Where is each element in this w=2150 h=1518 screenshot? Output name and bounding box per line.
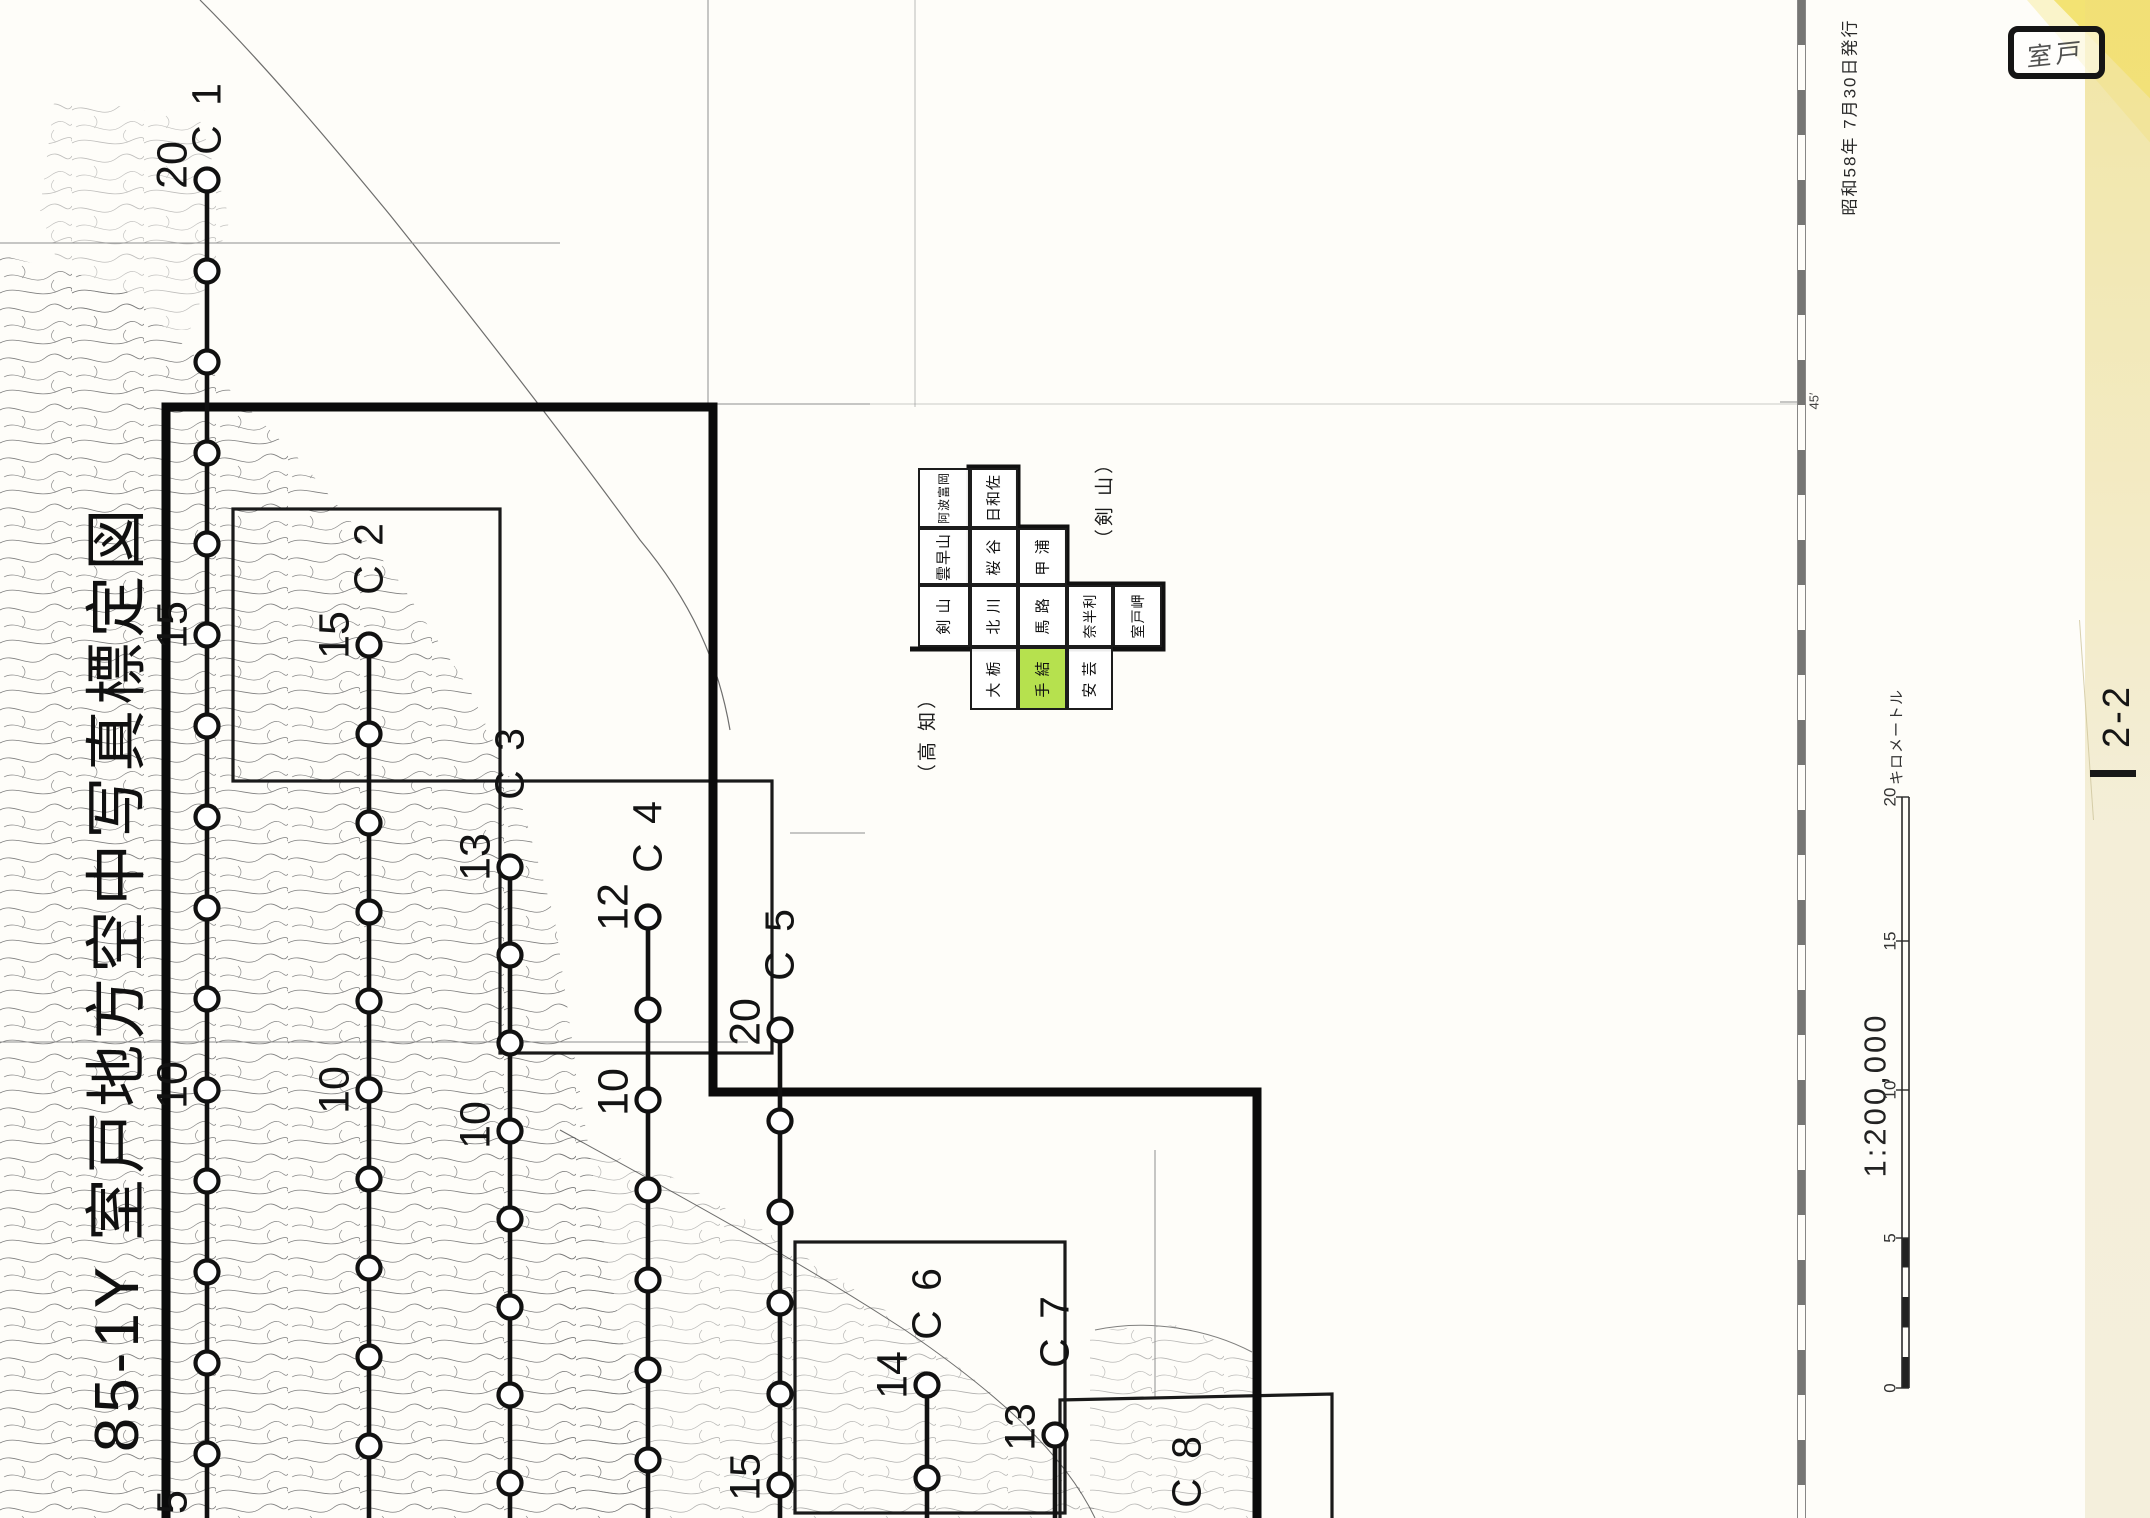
photo-number-c4-10: 10 (593, 1068, 636, 1116)
photo-center-c3 (499, 944, 522, 967)
sheet-number: 2-2 (2098, 684, 2136, 748)
flight-line-label-c5: C 5 (760, 905, 801, 981)
index-cell-label-甲浦: 甲 浦 (1035, 538, 1050, 575)
photo-center-c2 (358, 990, 381, 1013)
flight-line-label-c8: C 8 (1167, 1432, 1208, 1508)
photo-center-c2 (358, 1168, 381, 1191)
flight-line-label-c2: C 2 (349, 519, 390, 595)
flight-line-label-c6: C 6 (907, 1264, 948, 1340)
photo-center-c5 (769, 1110, 792, 1133)
index-cell-label-北川: 北 川 (987, 597, 1002, 634)
photo-center-c3 (499, 1296, 522, 1319)
flight-line-label-c7: C 7 (1035, 1292, 1076, 1368)
photo-center-c5 (769, 1474, 792, 1497)
latitude-border-bar (1797, 0, 1806, 1518)
scale-tick-15: 15 (1882, 932, 1899, 951)
photo-center-c4 (637, 1089, 660, 1112)
photo-number-c3-10: 10 (455, 1101, 498, 1149)
photo-number-c1-20: 20 (152, 141, 195, 189)
photo-center-c1 (196, 897, 219, 920)
photo-center-c4 (637, 1269, 660, 1292)
photo-center-c3 (499, 1472, 522, 1495)
photo-center-c3 (499, 1208, 522, 1231)
index-cell-label-日和佐: 日和佐 (987, 474, 1002, 522)
photo-number-c6-14: 14 (872, 1351, 915, 1399)
muroto-stamp-text: 室戸 (2027, 31, 2086, 73)
index-cell-label-馬路: 馬 路 (1035, 597, 1050, 634)
photo-center-c2 (358, 634, 381, 657)
photo-center-c4 (637, 999, 660, 1022)
index-cell-label-室戸岬: 室戸岬 (1131, 594, 1145, 639)
index-cell-label-桜谷: 桜 谷 (987, 538, 1002, 575)
photo-center-c1 (196, 351, 219, 374)
index-cell-label-雲早山: 雲早山 (937, 532, 952, 580)
photo-center-c6 (916, 1467, 939, 1490)
photo-center-c4 (637, 906, 660, 929)
index-cell-label-大栃: 大 栃 (987, 660, 1002, 697)
photo-center-c2 (358, 1079, 381, 1102)
photo-center-c2 (358, 723, 381, 746)
photo-center-c7 (1044, 1424, 1067, 1447)
photo-center-c1 (196, 1443, 219, 1466)
sheet-number-mark (2090, 770, 2136, 777)
photo-center-c2 (358, 812, 381, 835)
scale-tick-20: 20 (1882, 788, 1899, 807)
index-cell-label-安芸: 安 芸 (1083, 660, 1098, 697)
photo-center-c1 (196, 442, 219, 465)
photo-number-c7-13: 13 (1000, 1403, 1043, 1451)
map-drawing (0, 0, 2150, 1518)
photo-center-c2 (358, 901, 381, 924)
photo-center-c1 (196, 533, 219, 556)
photo-center-c5 (769, 1019, 792, 1042)
scale-tick-5: 5 (1882, 1233, 1899, 1242)
photo-number-c3-13: 13 (455, 833, 498, 881)
photo-number-c5-15: 15 (725, 1453, 768, 1501)
photo-center-c1 (196, 260, 219, 283)
photo-center-c4 (637, 1449, 660, 1472)
scale-unit-label: キロメートル (1890, 689, 1905, 785)
adjacent-sheet-label-tsurugisan: （剣 山） (1096, 452, 1115, 548)
adjacent-sheet-label-kochi: （高 知） (919, 687, 938, 783)
publication-date: 昭和58年 7月30日発行 (1842, 19, 1859, 216)
photo-number-c4-12: 12 (593, 883, 636, 931)
photo-center-c1 (196, 1079, 219, 1102)
photo-number-c2-15: 15 (314, 611, 357, 659)
photo-center-c1 (196, 1261, 219, 1284)
photo-number-c2-10: 10 (314, 1066, 357, 1114)
photo-number-c5-20: 20 (725, 998, 768, 1046)
index-cell-label-剣山: 剣 山 (937, 597, 952, 634)
photo-center-c3 (499, 1384, 522, 1407)
photo-center-c1 (196, 1170, 219, 1193)
map-title: 85-1Y 室戸地方空中写真標定図 (87, 504, 149, 1453)
photo-center-c1 (196, 169, 219, 192)
photo-center-c1 (196, 715, 219, 738)
photo-number-c1-5: 5 (152, 1490, 195, 1514)
photo-center-c5 (769, 1292, 792, 1315)
flight-line-label-c4: C 4 (628, 797, 669, 873)
flight-line-label-c3: C 3 (490, 724, 531, 800)
photo-center-c5 (769, 1201, 792, 1224)
index-cell-label-奈半利: 奈半利 (1083, 594, 1097, 639)
photo-number-c1-15: 15 (152, 601, 195, 649)
scale-tick-10: 10 (1882, 1081, 1899, 1100)
photo-center-c1 (196, 806, 219, 829)
scanned-map-page: 85-1Y 室戸地方空中写真標定図 昭和58年 7月30日発行 1:200,00… (0, 0, 2150, 1518)
photo-center-c2 (358, 1257, 381, 1280)
photo-center-c5 (769, 1383, 792, 1406)
photo-center-c1 (196, 988, 219, 1011)
photo-center-c3 (499, 1032, 522, 1055)
latitude-tick-label: 45′ (1808, 393, 1821, 410)
photo-center-c2 (358, 1435, 381, 1458)
photo-center-c2 (358, 1346, 381, 1369)
photo-center-c3 (499, 1120, 522, 1143)
photo-center-c6 (916, 1374, 939, 1397)
photo-center-c4 (637, 1359, 660, 1382)
muroto-stamp: 室戸 (2008, 26, 2105, 79)
photo-center-c1 (196, 1352, 219, 1375)
index-cell-label-阿波富岡: 阿波富岡 (938, 472, 950, 524)
photo-number-c1-10: 10 (152, 1061, 195, 1109)
scale-tick-0: 0 (1882, 1383, 1899, 1392)
photo-center-c1 (196, 624, 219, 647)
photo-center-c4 (637, 1179, 660, 1202)
photo-center-c3 (499, 856, 522, 879)
index-cell-label-手結: 手 結 (1035, 660, 1050, 697)
